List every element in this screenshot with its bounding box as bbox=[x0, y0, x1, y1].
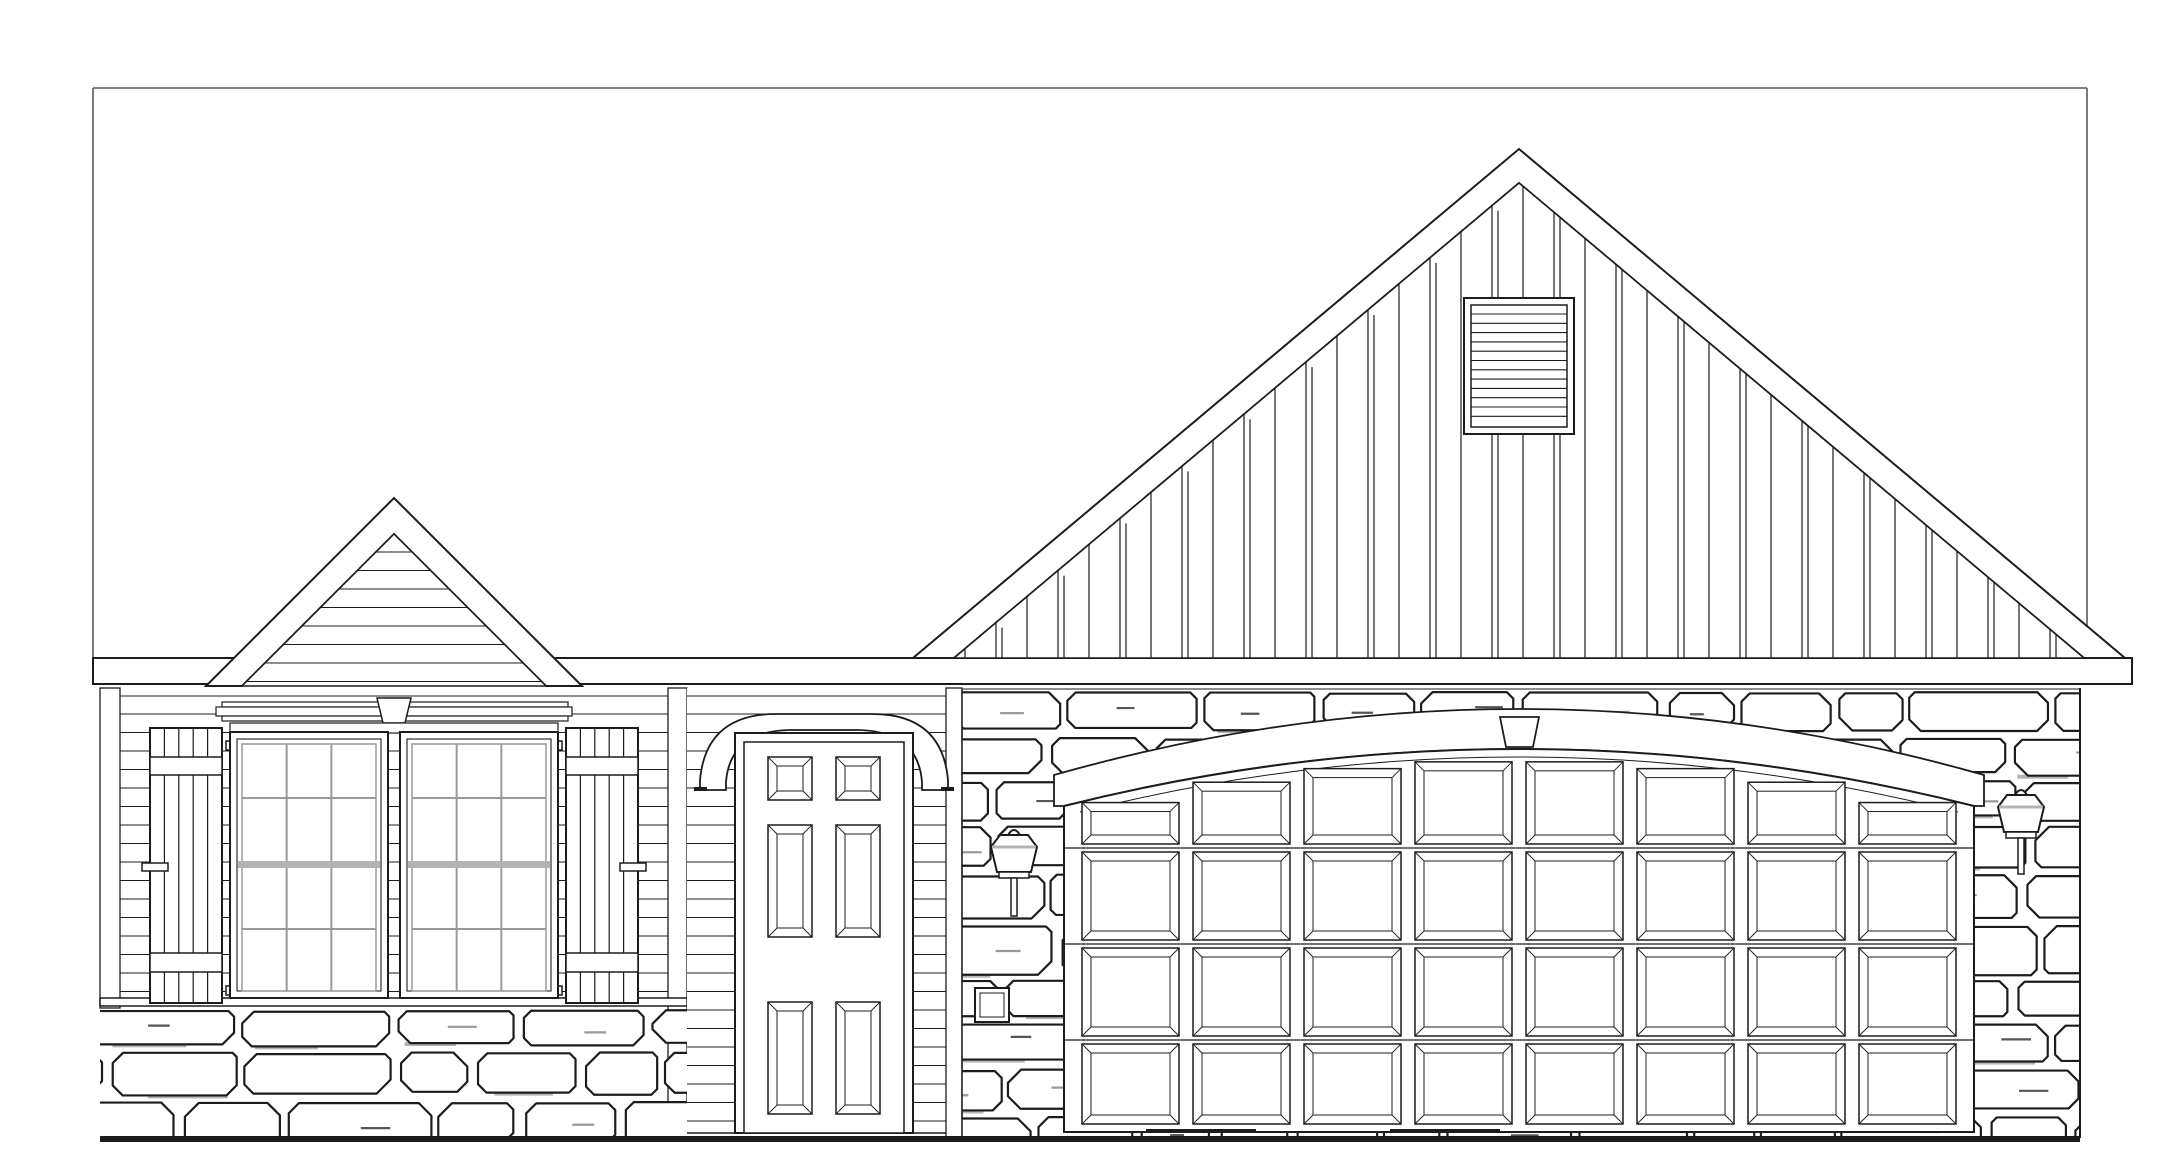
right-shutter bbox=[553, 728, 646, 1003]
utility-box bbox=[975, 988, 1009, 1022]
window-cornice bbox=[216, 698, 572, 733]
ground-line bbox=[100, 1136, 2080, 1142]
stone-veneer-left bbox=[49, 1010, 785, 1148]
window-left bbox=[230, 732, 388, 998]
gable-vent bbox=[1464, 298, 1574, 434]
elevation-drawing bbox=[0, 0, 2172, 1176]
front-door bbox=[735, 733, 913, 1133]
entry-door-section bbox=[687, 688, 962, 1138]
garage-door bbox=[1064, 749, 1974, 1133]
elevation-sheet bbox=[0, 0, 2172, 1176]
left-shutter bbox=[142, 728, 235, 1003]
window-right bbox=[400, 732, 558, 998]
